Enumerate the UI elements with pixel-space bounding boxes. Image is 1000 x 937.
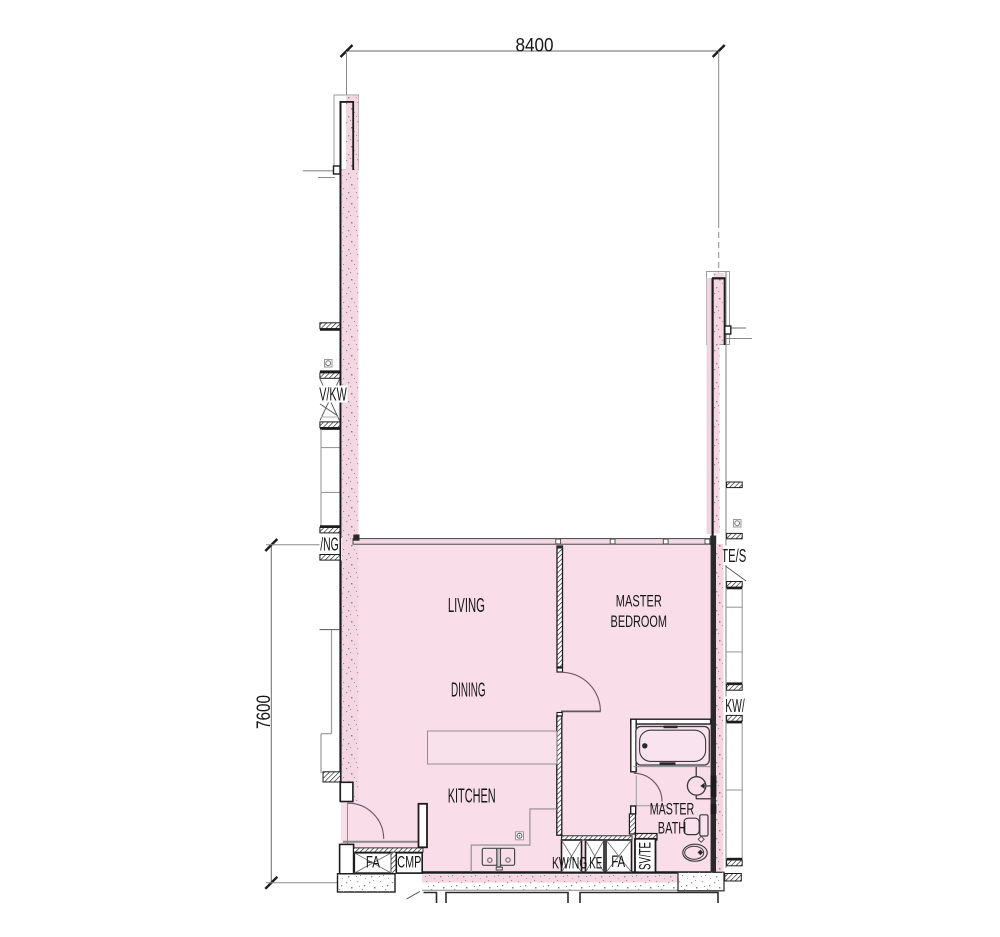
svg-text:V/KW: V/KW xyxy=(319,385,347,405)
svg-text:BATH: BATH xyxy=(658,820,687,838)
svg-text:SV/TE: SV/TE xyxy=(637,842,655,870)
svg-text:KW/: KW/ xyxy=(725,696,745,716)
svg-text:KITCHEN: KITCHEN xyxy=(448,784,496,807)
svg-text:KW/NG: KW/NG xyxy=(552,854,588,873)
svg-text:FA: FA xyxy=(366,853,380,872)
svg-text:/NG: /NG xyxy=(320,535,339,555)
svg-text:DINING: DINING xyxy=(451,678,486,701)
svg-text:CMP: CMP xyxy=(397,853,421,872)
svg-text:MASTER: MASTER xyxy=(616,593,662,611)
svg-text:BEDROOM: BEDROOM xyxy=(611,613,668,631)
svg-text:MASTER: MASTER xyxy=(650,800,695,818)
svg-text:KE: KE xyxy=(589,854,602,873)
svg-text:LIVING: LIVING xyxy=(448,594,485,617)
svg-text:8400: 8400 xyxy=(516,35,554,57)
svg-text:FA: FA xyxy=(611,852,625,871)
svg-text:7600: 7600 xyxy=(254,695,275,729)
svg-text:TE/S: TE/S xyxy=(721,546,746,566)
